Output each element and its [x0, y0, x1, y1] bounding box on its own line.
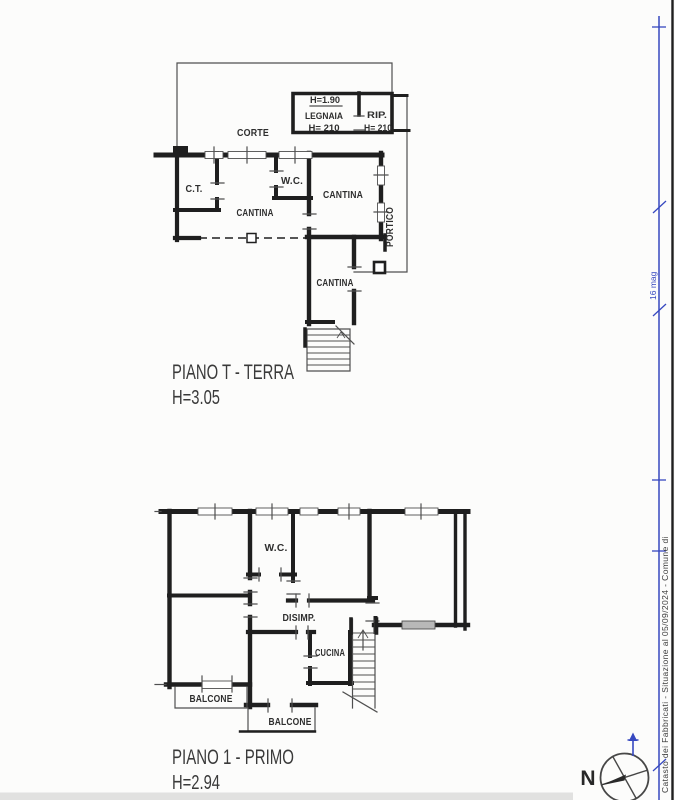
room-label-ct: C.T.	[186, 184, 203, 195]
room-label-cantina-mid: CANTINA	[237, 208, 274, 219]
first-floor-windows	[198, 504, 438, 692]
room-label-corte: CORTE	[237, 128, 269, 139]
room-label-balcone-center: BALCONE	[269, 717, 312, 728]
ground-floor-stairs	[305, 326, 354, 371]
first-floor-title: PIANO 1 - PRIMO	[172, 746, 294, 769]
room-label-cantina-lower: CANTINA	[317, 278, 354, 289]
measure-line-note: 16 mag	[648, 271, 658, 300]
room-label-balcone-left: BALCONE	[190, 694, 233, 705]
ground-floor-walls	[156, 146, 385, 324]
legnaia-height-top: H=1.90	[310, 95, 340, 106]
room-label-rip: RIP.	[367, 110, 387, 121]
room-label-wc-ground: W.C.	[281, 176, 303, 187]
north-compass-icon: N	[580, 733, 648, 800]
room-label-cucina: CUCINA	[315, 648, 345, 659]
room-label-wc-first: W.C.	[265, 543, 288, 554]
portico-column	[374, 262, 385, 273]
cadastre-footer-text: Catasto dei Fabbricati - Situazione al 0…	[660, 536, 670, 793]
ground-floor-height: H=3.05	[172, 387, 220, 409]
scan-artifact	[0, 793, 573, 800]
first-floor-plan: W.C. DISIMP. CUCINA BALCONE BALCONE PIAN…	[155, 504, 468, 794]
first-floor-height: H=2.94	[172, 772, 220, 794]
window-sill	[402, 621, 435, 629]
north-label: N	[580, 767, 595, 790]
legnaia-height-bottom: H= 210	[309, 123, 340, 134]
ground-floor-door-ticks	[211, 171, 361, 291]
room-label-portico: PORTICO	[385, 207, 396, 247]
floor-plan-drawing: CORTE H=1.90 LEGNAIA H= 210 RIP. H= 210 …	[0, 0, 675, 800]
room-label-disimp: DISIMP.	[283, 613, 316, 624]
rip-height: H= 210	[364, 123, 392, 133]
scanned-floorplan-page: CORTE H=1.90 LEGNAIA H= 210 RIP. H= 210 …	[0, 0, 675, 800]
north-direction-arrowhead	[629, 733, 637, 742]
partition-marker	[247, 234, 256, 243]
right-margin: 16 mag Catasto dei Fabbricati - Situazio…	[648, 0, 673, 800]
room-label-legnaia: LEGNAIA	[305, 111, 343, 122]
room-label-cantina-right: CANTINA	[323, 190, 363, 201]
ground-floor-plan: CORTE H=1.90 LEGNAIA H= 210 RIP. H= 210 …	[156, 63, 409, 409]
ground-floor-title: PIANO T - TERRA	[172, 361, 294, 384]
